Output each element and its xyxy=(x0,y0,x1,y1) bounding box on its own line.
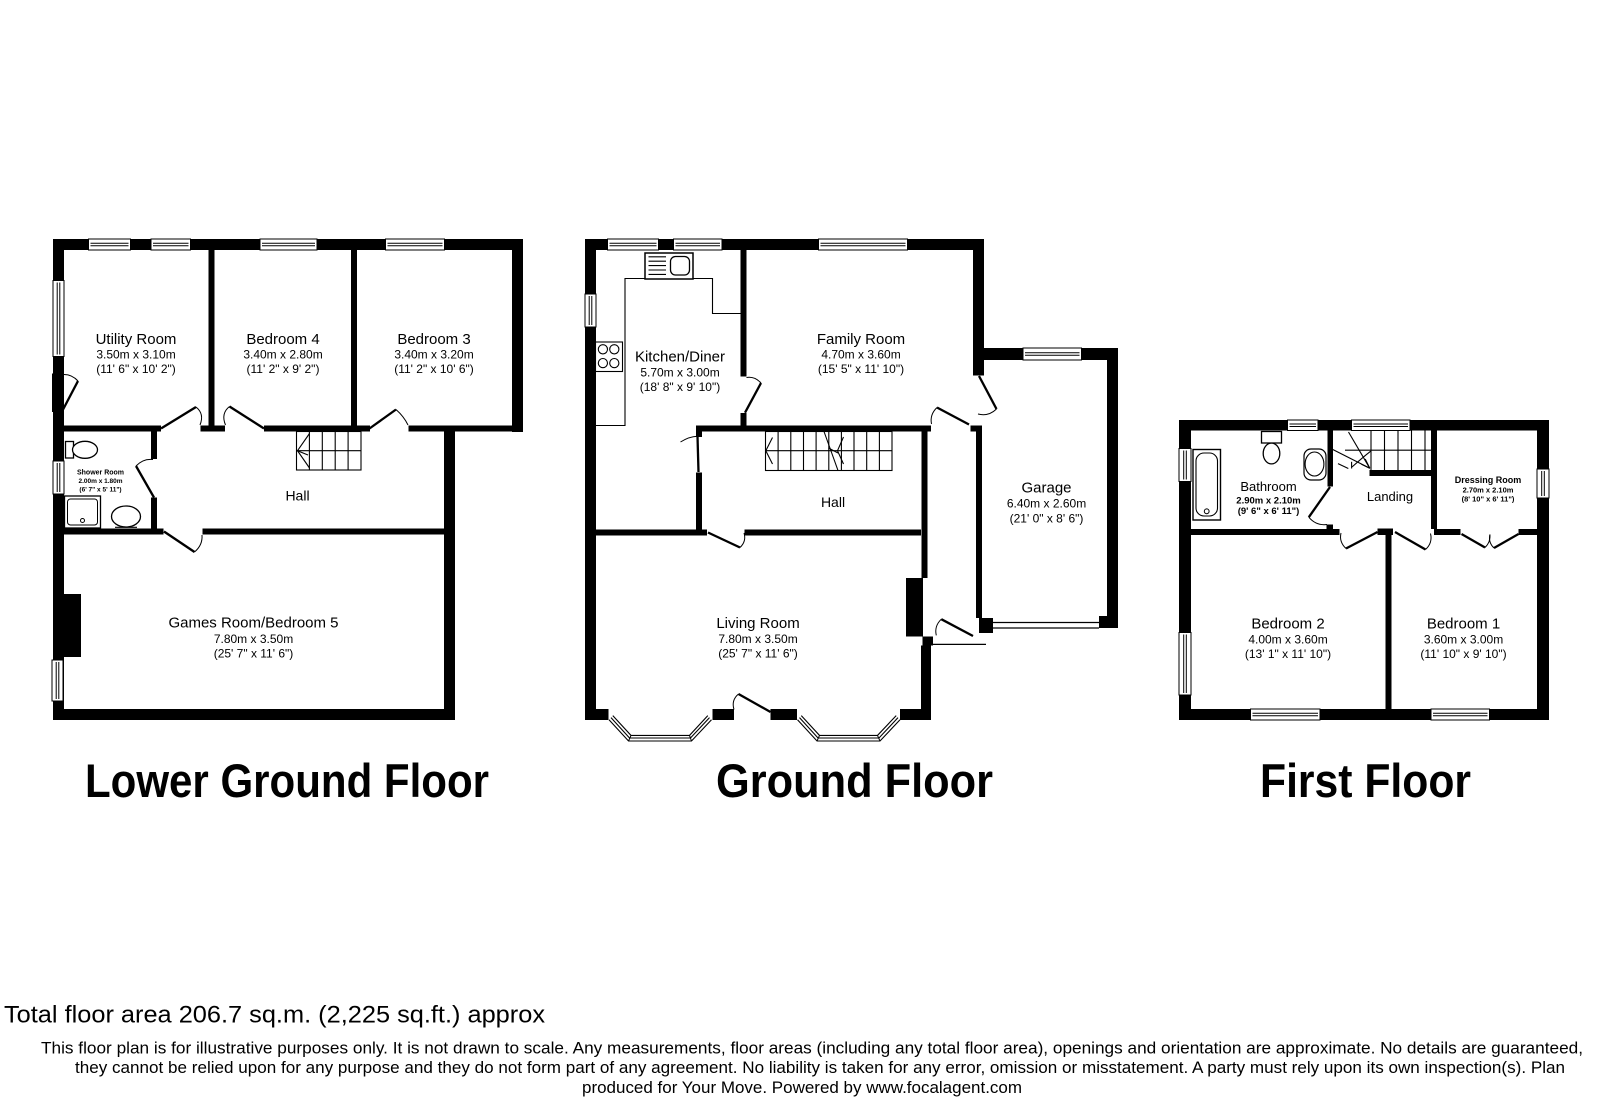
svg-text:Utility Room: Utility Room xyxy=(96,331,177,348)
svg-text:3.40m x 3.20m: 3.40m x 3.20m xyxy=(394,348,473,362)
svg-text:produced for Your Move. Powere: produced for Your Move. Powered by www.f… xyxy=(582,1078,1022,1097)
svg-text:Hall: Hall xyxy=(285,488,309,504)
svg-text:This floor plan is for illustr: This floor plan is for illustrative purp… xyxy=(41,1039,1583,1058)
svg-text:2.70m x 2.10m: 2.70m x 2.10m xyxy=(1463,486,1514,495)
svg-text:2.00m x 1.80m: 2.00m x 1.80m xyxy=(78,478,122,485)
svg-text:Garage: Garage xyxy=(1021,480,1071,497)
svg-text:they cannot be relied upon for: they cannot be relied upon for any purpo… xyxy=(75,1058,1565,1077)
svg-text:(25' 7" x 11' 6"): (25' 7" x 11' 6") xyxy=(214,647,294,661)
svg-text:(11' 10" x 9' 10"): (11' 10" x 9' 10") xyxy=(1420,647,1506,661)
svg-text:Hall: Hall xyxy=(821,494,845,510)
svg-text:6.40m x 2.60m: 6.40m x 2.60m xyxy=(1007,497,1086,511)
svg-text:First Floor: First Floor xyxy=(1260,754,1471,807)
svg-text:(18' 8" x 9' 10"): (18' 8" x 9' 10") xyxy=(640,380,720,394)
svg-text:Shower Room: Shower Room xyxy=(77,470,124,477)
svg-text:Games Room/Bedroom 5: Games Room/Bedroom 5 xyxy=(168,615,338,632)
svg-text:(25' 7" x 11' 6"): (25' 7" x 11' 6") xyxy=(718,647,798,661)
svg-text:7.80m x 3.50m: 7.80m x 3.50m xyxy=(718,632,797,646)
svg-text:(21' 0" x 8' 6"): (21' 0" x 8' 6") xyxy=(1010,512,1084,526)
svg-text:2.90m x 2.10m: 2.90m x 2.10m xyxy=(1236,496,1300,507)
svg-text:(6' 7" x 5' 11"): (6' 7" x 5' 11") xyxy=(79,487,121,494)
svg-text:(15' 5" x 11' 10"): (15' 5" x 11' 10") xyxy=(818,362,904,376)
svg-text:Living Room: Living Room xyxy=(716,615,799,632)
svg-text:Lower Ground Floor: Lower Ground Floor xyxy=(85,754,489,807)
svg-text:(8' 10" x 6' 11"): (8' 10" x 6' 11") xyxy=(1462,495,1515,504)
svg-text:(11' 6" x 10' 2"): (11' 6" x 10' 2") xyxy=(96,362,176,376)
svg-text:Bedroom 3: Bedroom 3 xyxy=(397,331,470,348)
svg-text:7.80m x 3.50m: 7.80m x 3.50m xyxy=(214,632,293,646)
svg-text:Kitchen/Diner: Kitchen/Diner xyxy=(635,349,725,366)
svg-text:(9' 6" x 6' 11"): (9' 6" x 6' 11") xyxy=(1238,506,1300,517)
svg-text:Family Room: Family Room xyxy=(817,331,905,348)
svg-text:(11' 2" x 10' 6"): (11' 2" x 10' 6") xyxy=(394,362,474,376)
svg-text:Bedroom 1: Bedroom 1 xyxy=(1427,616,1500,633)
svg-text:4.00m x 3.60m: 4.00m x 3.60m xyxy=(1248,633,1327,647)
svg-text:Bedroom 2: Bedroom 2 xyxy=(1251,616,1324,633)
svg-text:Bathroom: Bathroom xyxy=(1240,479,1296,494)
svg-text:3.50m x 3.10m: 3.50m x 3.10m xyxy=(96,348,175,362)
svg-text:3.40m x 2.80m: 3.40m x 2.80m xyxy=(243,348,322,362)
svg-text:Landing: Landing xyxy=(1367,489,1413,504)
svg-text:Total floor area 206.7 sq.m. (: Total floor area 206.7 sq.m. (2,225 sq.f… xyxy=(4,1002,545,1029)
svg-text:4.70m x 3.60m: 4.70m x 3.60m xyxy=(821,348,900,362)
svg-text:Bedroom 4: Bedroom 4 xyxy=(246,331,319,348)
svg-text:3.60m x 3.00m: 3.60m x 3.00m xyxy=(1424,633,1503,647)
svg-text:(13' 1" x 11' 10"): (13' 1" x 11' 10") xyxy=(1245,647,1331,661)
svg-text:Dressing Room: Dressing Room xyxy=(1455,475,1522,485)
svg-text:(11' 2" x 9' 2"): (11' 2" x 9' 2") xyxy=(247,362,320,376)
svg-text:Ground Floor: Ground Floor xyxy=(716,754,993,807)
svg-text:5.70m x 3.00m: 5.70m x 3.00m xyxy=(640,366,719,380)
